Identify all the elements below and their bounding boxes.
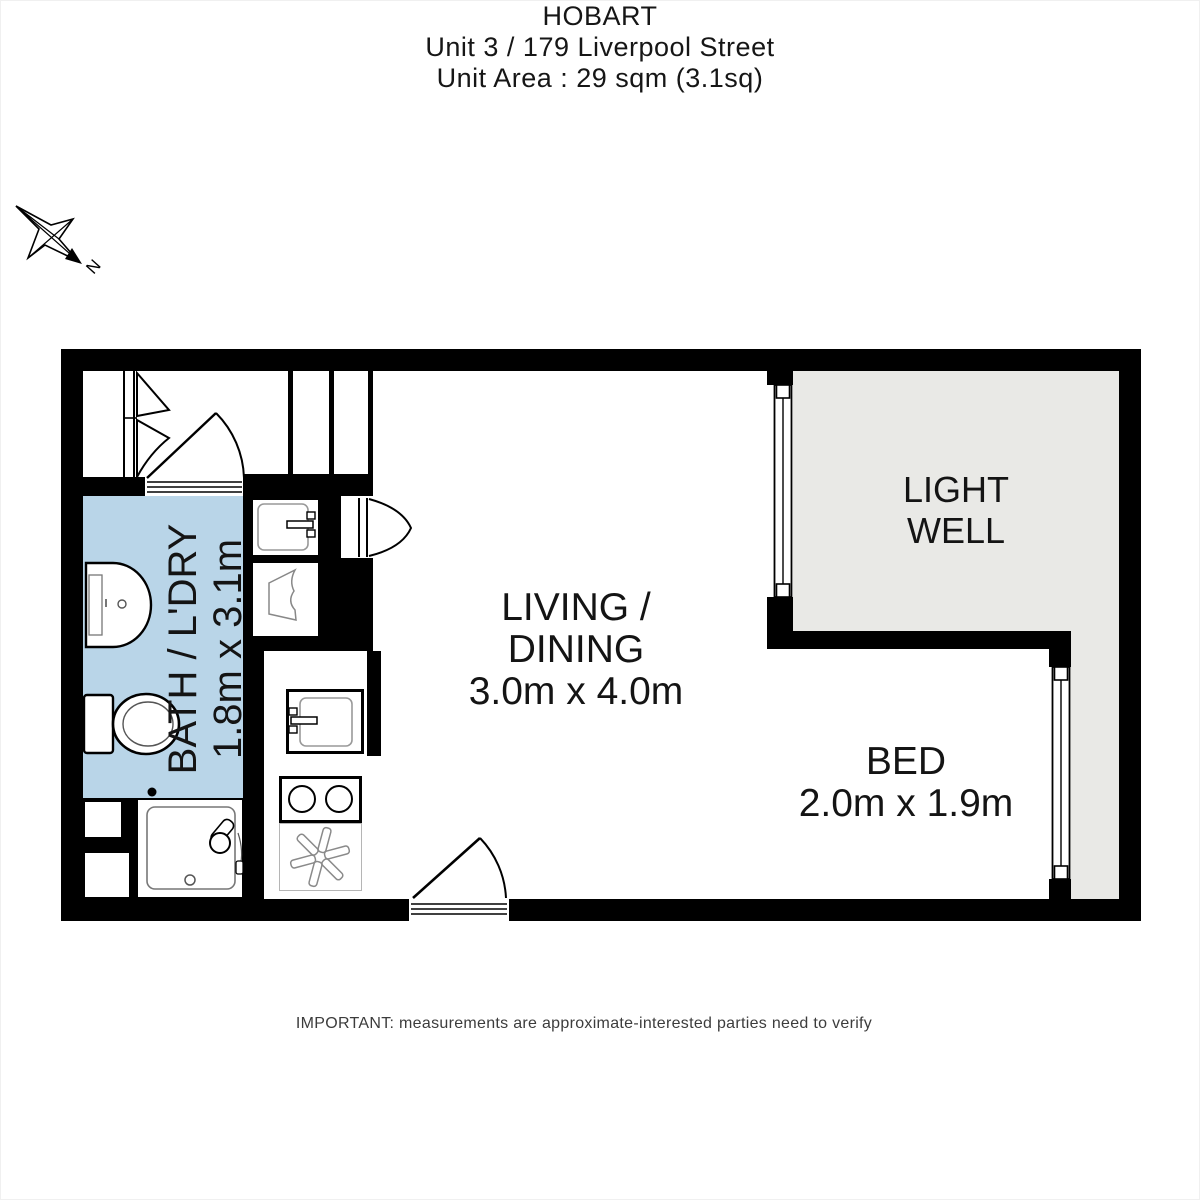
bath-room-dims: 1.8m x 3.1m xyxy=(206,539,251,759)
title-area: Unit Area : 29 sqm (3.1sq) xyxy=(1,63,1199,94)
wall-segment xyxy=(243,474,373,496)
wall-segment xyxy=(61,349,83,921)
door-threshold xyxy=(145,477,243,496)
wall-segment xyxy=(368,371,373,474)
wall-segment xyxy=(61,349,1141,371)
light-well-name-1: LIGHT xyxy=(806,469,1106,510)
bed-room-dims: 2.0m x 1.9m xyxy=(751,783,1061,825)
window-jamb xyxy=(1049,879,1071,901)
wall-niche xyxy=(85,853,129,897)
wall-segment xyxy=(329,371,334,474)
light-well-side-strip xyxy=(1069,631,1119,899)
wall-segment xyxy=(288,371,293,474)
window-jamb xyxy=(1049,649,1071,667)
disclaimer-text: IMPORTANT: measurements are approximate-… xyxy=(1,1015,1167,1033)
title-address: Unit 3 / 179 Liverpool Street xyxy=(1,32,1199,63)
wall-segment xyxy=(367,651,381,756)
bifold-door-icon xyxy=(124,371,169,478)
light-well-name-2: WELL xyxy=(806,510,1106,551)
wall-segment xyxy=(341,558,373,651)
bed-room-label: BED 2.0m x 1.9m xyxy=(751,741,1061,825)
compass-n-label: N xyxy=(82,256,104,278)
wall-segment xyxy=(774,631,1071,649)
floorplan-page: HOBART Unit 3 / 179 Liverpool Street Uni… xyxy=(0,0,1200,1200)
living-room-label: LIVING / DINING 3.0m x 4.0m xyxy=(401,587,751,713)
cooktop-unit xyxy=(279,776,362,823)
bath-room-name: BATH / L'DRY xyxy=(161,524,206,775)
light-well-label: LIGHT WELL xyxy=(806,469,1106,551)
compass-north-icon: N xyxy=(16,206,105,278)
living-room-name-1: LIVING / xyxy=(401,587,751,629)
plan-title: HOBART Unit 3 / 179 Liverpool Street Uni… xyxy=(1,1,1199,94)
living-room-dims: 3.0m x 4.0m xyxy=(401,671,751,713)
shower-cubicle xyxy=(136,798,244,899)
wall-segment xyxy=(1119,349,1141,921)
bath-room-label: BATH / L'DRY 1.8m x 3.1m xyxy=(86,527,326,771)
window-icon xyxy=(775,385,792,597)
internal-door-icon xyxy=(359,498,411,557)
bed-room-name: BED xyxy=(751,741,1061,783)
window-jamb xyxy=(767,371,793,385)
wall-segment xyxy=(83,477,145,496)
extractor-fan-unit xyxy=(279,823,362,891)
door-threshold xyxy=(409,899,509,921)
living-room-name-2: DINING xyxy=(401,629,751,671)
wall-niche xyxy=(85,802,121,837)
wall-segment xyxy=(61,899,1141,921)
window-jamb xyxy=(767,597,793,649)
title-city: HOBART xyxy=(1,1,1199,32)
